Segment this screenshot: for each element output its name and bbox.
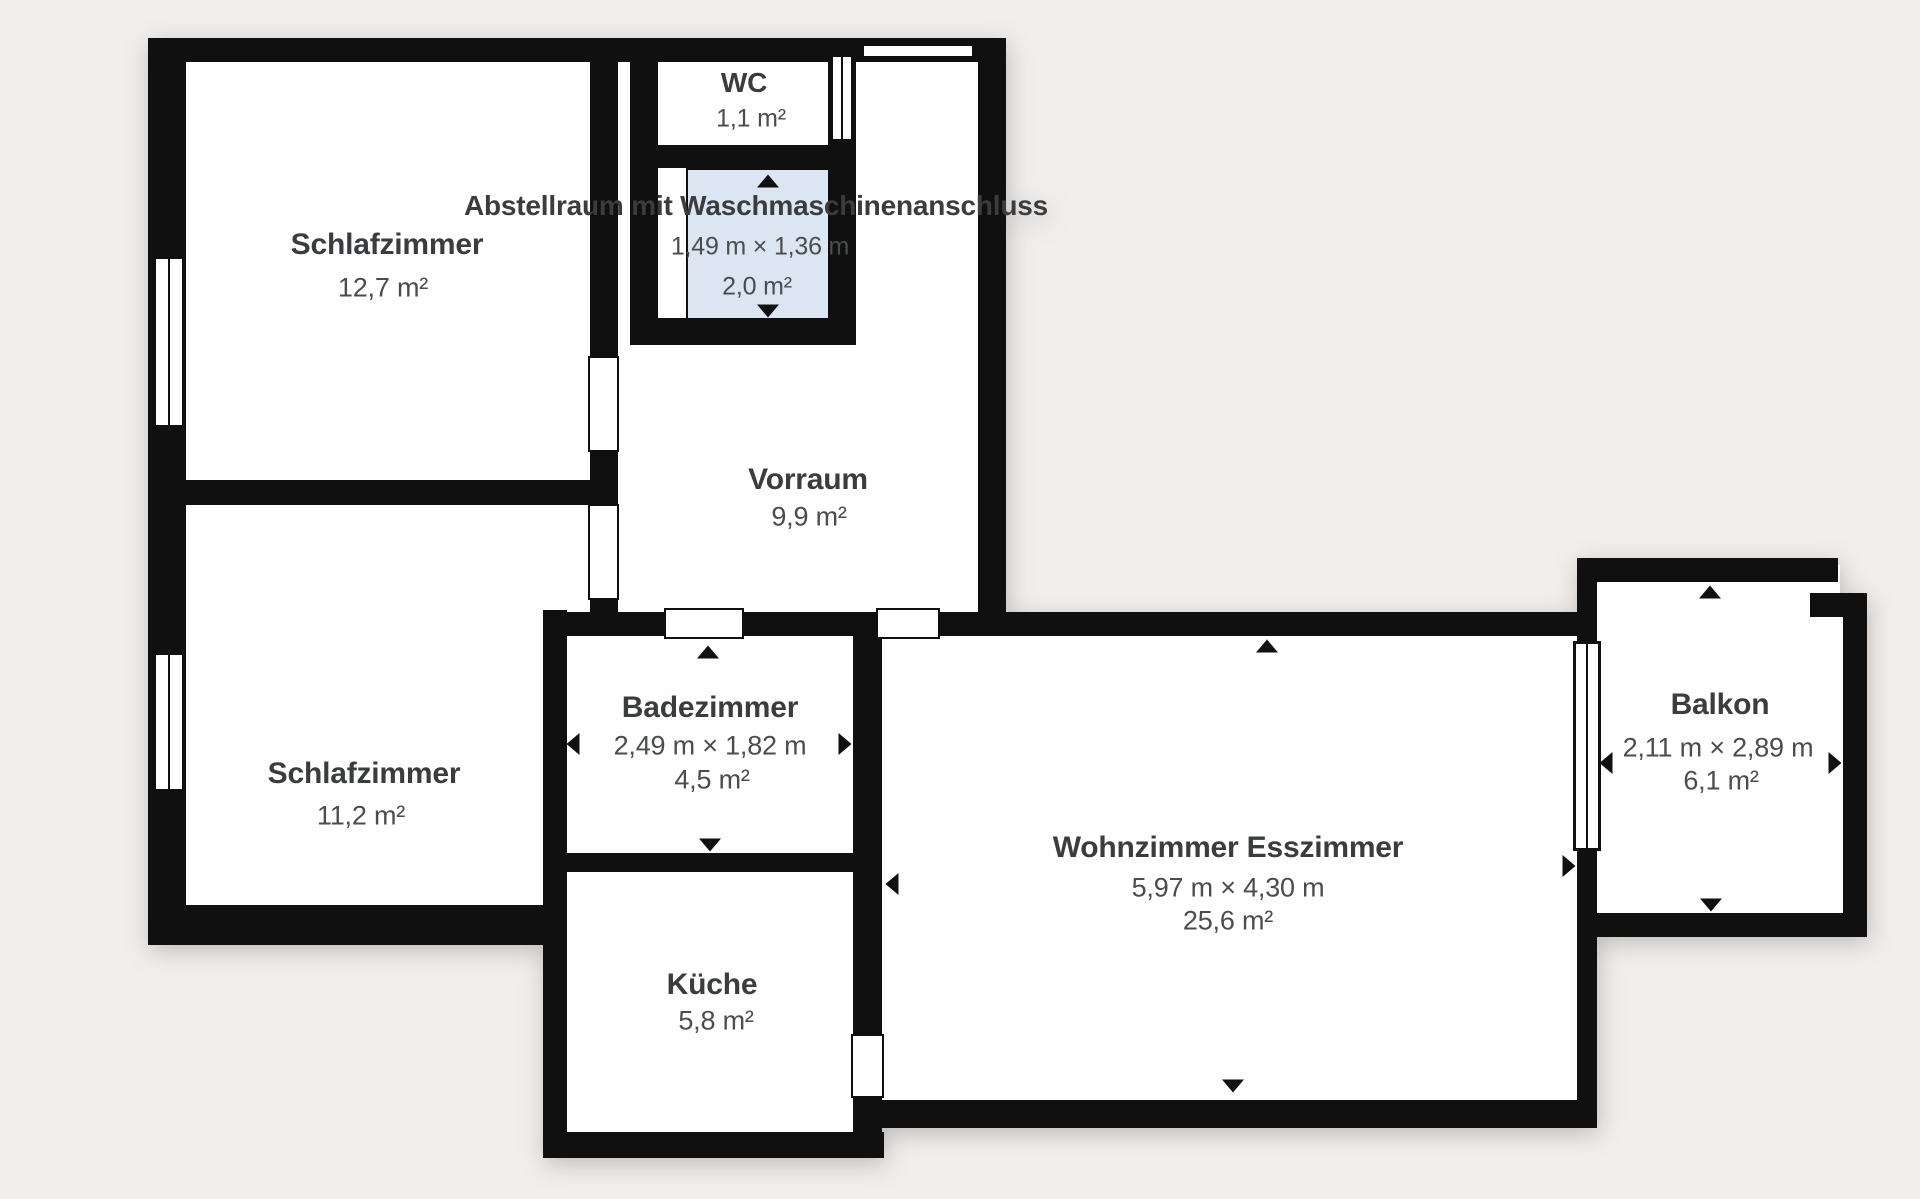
floor-plan-canvas: Schlafzimmer12,7 m²Schlafzimmer11,2 m²WC…	[0, 0, 1920, 1199]
label-wohnzimmer-dims: 5,97 m × 4,30 m	[1132, 875, 1325, 902]
arrow-left-icon-wohnzimmer	[886, 873, 899, 895]
door-entry	[862, 44, 974, 58]
wall-balkon-step	[1810, 593, 1867, 617]
window-schlafzimmer-2	[153, 652, 185, 792]
arrow-up-icon-balkon	[1699, 586, 1721, 599]
wall-wohnzimmer-bottom	[855, 1100, 1597, 1128]
wall-abstell-bottom	[630, 318, 856, 345]
label-balkon-area: 6,1 m²	[1683, 768, 1758, 795]
wall-vorraum-right	[978, 38, 1006, 636]
label-kueche-name: Küche	[667, 970, 758, 1000]
arrow-right-icon-badezimmer	[839, 733, 852, 755]
door-schlafzimmer-2	[588, 504, 619, 600]
label-wc-name: WC	[721, 69, 767, 97]
arrow-down-icon-badezimmer	[699, 839, 721, 852]
wall-bad-kueche-divider	[543, 853, 882, 872]
room-fill-schlafzimmer-1	[160, 48, 615, 492]
label-balkon-dims: 2,11 m × 2,89 m	[1623, 735, 1814, 762]
label-schlafzimmer-1-name: Schlafzimmer	[291, 230, 484, 260]
room-fill-wohnzimmer	[865, 615, 1590, 1120]
arrow-down-icon-abstellraum	[757, 305, 779, 318]
wall-schlaf2-bottom	[148, 905, 567, 945]
label-badezimmer-dims: 2,49 m × 1,82 m	[614, 733, 807, 760]
label-balkon-name: Balkon	[1671, 690, 1770, 720]
arrow-right-icon-balkon	[1829, 752, 1842, 774]
door-kueche	[851, 1034, 884, 1098]
wall-kueche-bottom	[543, 1132, 884, 1158]
wall-balkon-top	[1577, 558, 1838, 582]
label-kueche-area: 5,8 m²	[678, 1008, 753, 1035]
wall-balkon-bottom	[1577, 913, 1867, 937]
label-abstellraum-name: Abstellraum mit Waschmaschinenanschluss	[464, 192, 1048, 220]
label-schlafzimmer-2-name: Schlafzimmer	[268, 759, 461, 789]
arrow-up-icon-badezimmer	[697, 646, 719, 659]
door-schlafzimmer-1	[588, 356, 619, 452]
label-abstellraum-dims: 1,49 m × 1,36 m	[671, 235, 849, 260]
door-wohnzimmer	[876, 608, 940, 639]
label-badezimmer-name: Badezimmer	[622, 693, 798, 723]
window-balkon-door	[1573, 641, 1601, 851]
window-wc	[830, 54, 854, 142]
arrow-up-icon-wohnzimmer	[1256, 640, 1278, 653]
label-wc-area: 1,1 m²	[716, 107, 786, 132]
label-wohnzimmer-area: 25,6 m²	[1183, 908, 1273, 935]
arrow-down-icon-balkon	[1700, 899, 1722, 912]
wall-schlaf-divider	[148, 480, 618, 505]
arrow-up-icon-abstellraum	[757, 175, 779, 188]
floor-plan: Schlafzimmer12,7 m²Schlafzimmer11,2 m²WC…	[0, 0, 1920, 1199]
door-badezimmer	[664, 608, 744, 639]
window-schlafzimmer-1	[153, 256, 185, 428]
room-fill-balkon-b	[1585, 600, 1857, 927]
wall-bad-kueche-left	[543, 610, 567, 1158]
label-abstellraum-area: 2,0 m²	[722, 275, 792, 300]
label-badezimmer-area: 4,5 m²	[674, 767, 749, 794]
arrow-right-icon-wohnzimmer	[1563, 855, 1576, 877]
label-wohnzimmer-name: Wohnzimmer Esszimmer	[1053, 833, 1404, 863]
wall-balkon-right	[1843, 595, 1867, 937]
label-vorraum-area: 9,9 m²	[771, 504, 846, 531]
arrow-left-icon-badezimmer	[567, 733, 580, 755]
label-schlafzimmer-1-area: 12,7 m²	[338, 275, 428, 302]
arrow-down-icon-wohnzimmer	[1222, 1080, 1244, 1093]
arrow-left-icon-balkon	[1600, 752, 1613, 774]
label-schlafzimmer-2-area: 11,2 m²	[317, 803, 405, 830]
label-vorraum-name: Vorraum	[748, 465, 868, 495]
